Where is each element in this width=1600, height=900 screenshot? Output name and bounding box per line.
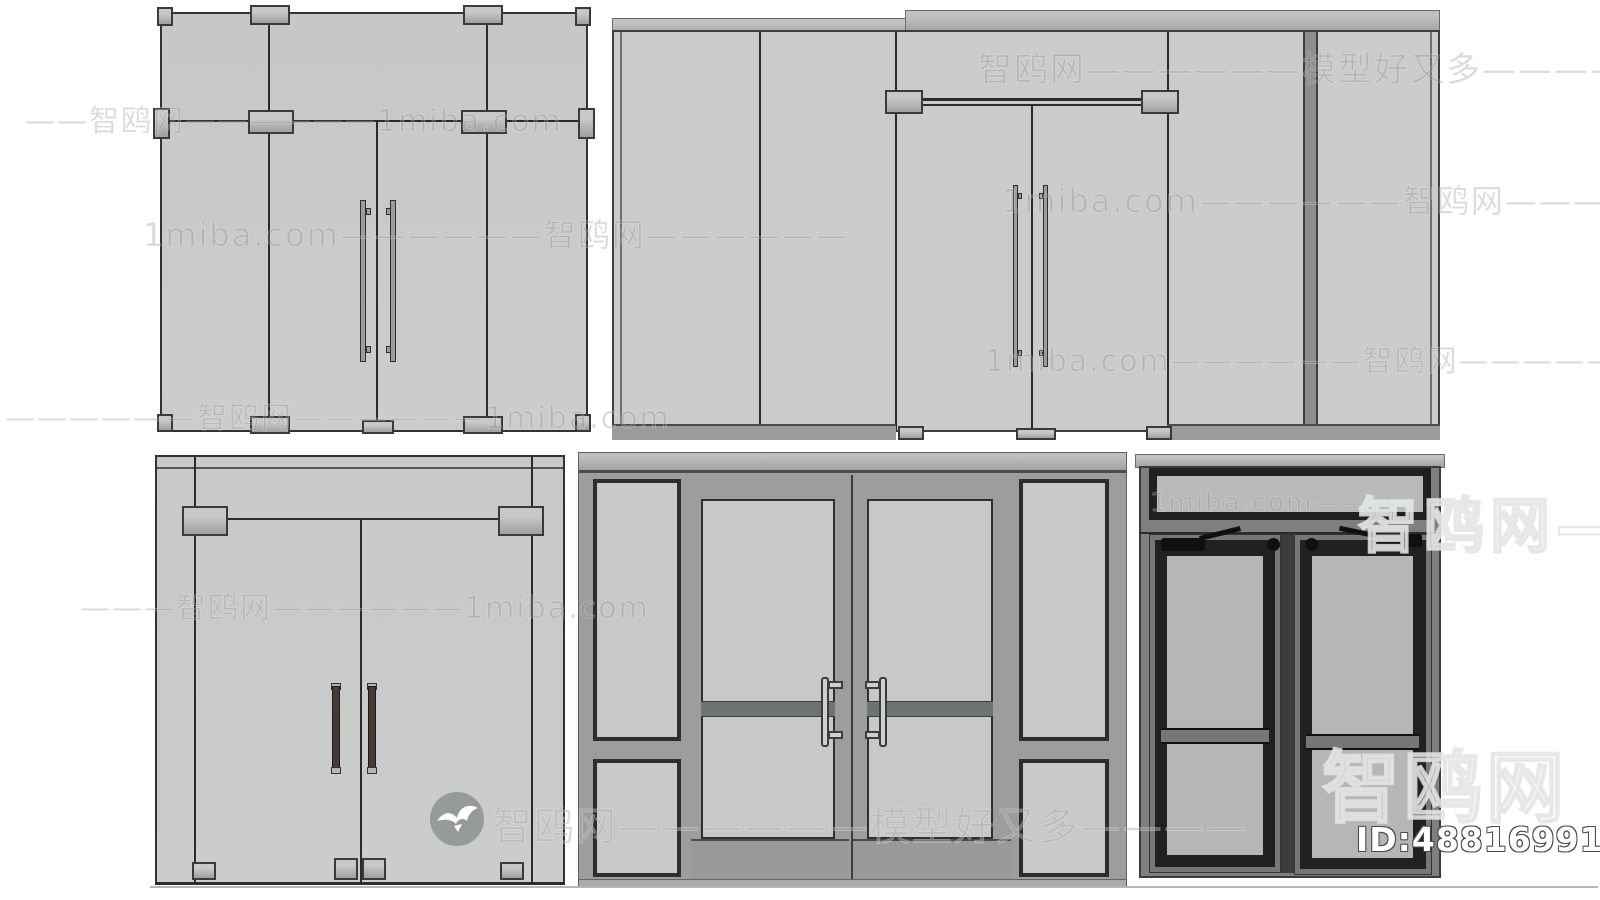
floor-fitting: [1146, 426, 1172, 440]
door-mid-rail: [1161, 728, 1269, 744]
patch-fitting: [182, 506, 228, 536]
floor-fitting: [334, 858, 358, 880]
watermark-row: 1miba.com——————智鸥网——————: [143, 210, 850, 256]
bottom-rail: [1167, 424, 1440, 440]
door-meeting-stile: [360, 520, 362, 883]
ground-line: [150, 886, 1598, 888]
door-glass: [701, 499, 835, 839]
handle-post: [828, 681, 843, 689]
pivot-hinge: [1267, 538, 1280, 551]
transom-joint: [194, 518, 533, 520]
door-models-preview-image: 智鸥网——————模型好又多———— ——智鸥网——————1miba.com …: [0, 0, 1600, 900]
door-d-handle: [879, 677, 887, 747]
floor-fitting: [192, 862, 216, 880]
watermark-row: 1miba.com——————智鸥网—————1miba.com: [985, 336, 1600, 380]
handle-cap: [331, 767, 341, 774]
watermark-row: ——智鸥网——————1miba.com: [25, 96, 563, 140]
door-glass: [867, 499, 993, 839]
watermark-row: 智鸥网——————模型好又多————: [492, 794, 1248, 852]
patch-fitting: [463, 5, 503, 25]
floor-fitting: [500, 862, 524, 880]
door-top-line: [895, 104, 1169, 106]
patch-fitting: [1141, 90, 1179, 114]
watermark-row: ———智鸥网——————1miba.com: [80, 583, 650, 627]
pivot-hinge: [1305, 538, 1318, 551]
door-pull-handle: [332, 686, 340, 772]
door-meeting-stile: [1031, 105, 1033, 432]
patch-fitting-bar: [921, 98, 1141, 101]
door-meeting-gap: [1281, 534, 1294, 873]
watermark-row: ——————智鸥网——————1miba.com: [5, 393, 671, 437]
floor-fitting: [898, 426, 924, 440]
push-bar: [701, 701, 835, 717]
door-glass: [1312, 556, 1413, 734]
handle-post: [828, 731, 843, 739]
floor-fitting: [1016, 428, 1056, 440]
watermark-big: 智鸥网————: [1358, 478, 1600, 565]
handle-bracket: [366, 346, 371, 353]
threshold: [579, 879, 1126, 886]
patch-fitting: [157, 7, 173, 26]
seagull-logo-icon: [428, 790, 486, 848]
handle-post: [865, 731, 880, 739]
top-line: [157, 467, 563, 469]
door-closer: [1161, 538, 1205, 551]
header-rail: [579, 453, 1126, 473]
handle-cap: [367, 767, 377, 774]
door-meeting-stile: [376, 122, 378, 432]
handle-bracket: [386, 346, 391, 353]
watermark-row: 智鸥网——————模型好又多————: [978, 42, 1600, 91]
patch-fitting: [498, 506, 544, 536]
handle-post: [865, 681, 880, 689]
patch-fitting: [885, 90, 923, 114]
door-glass: [1167, 556, 1263, 728]
watermark-row: 1miba.com——————智鸥网————: [1002, 176, 1600, 222]
patch-fitting: [575, 7, 591, 26]
floor-fitting: [362, 858, 386, 880]
model-id-label: ID:488169914: [1356, 820, 1600, 859]
door-pull-handle: [368, 686, 376, 772]
patch-fitting: [578, 108, 595, 139]
sidelight-glass: [1019, 479, 1109, 741]
patch-fitting: [250, 5, 290, 25]
